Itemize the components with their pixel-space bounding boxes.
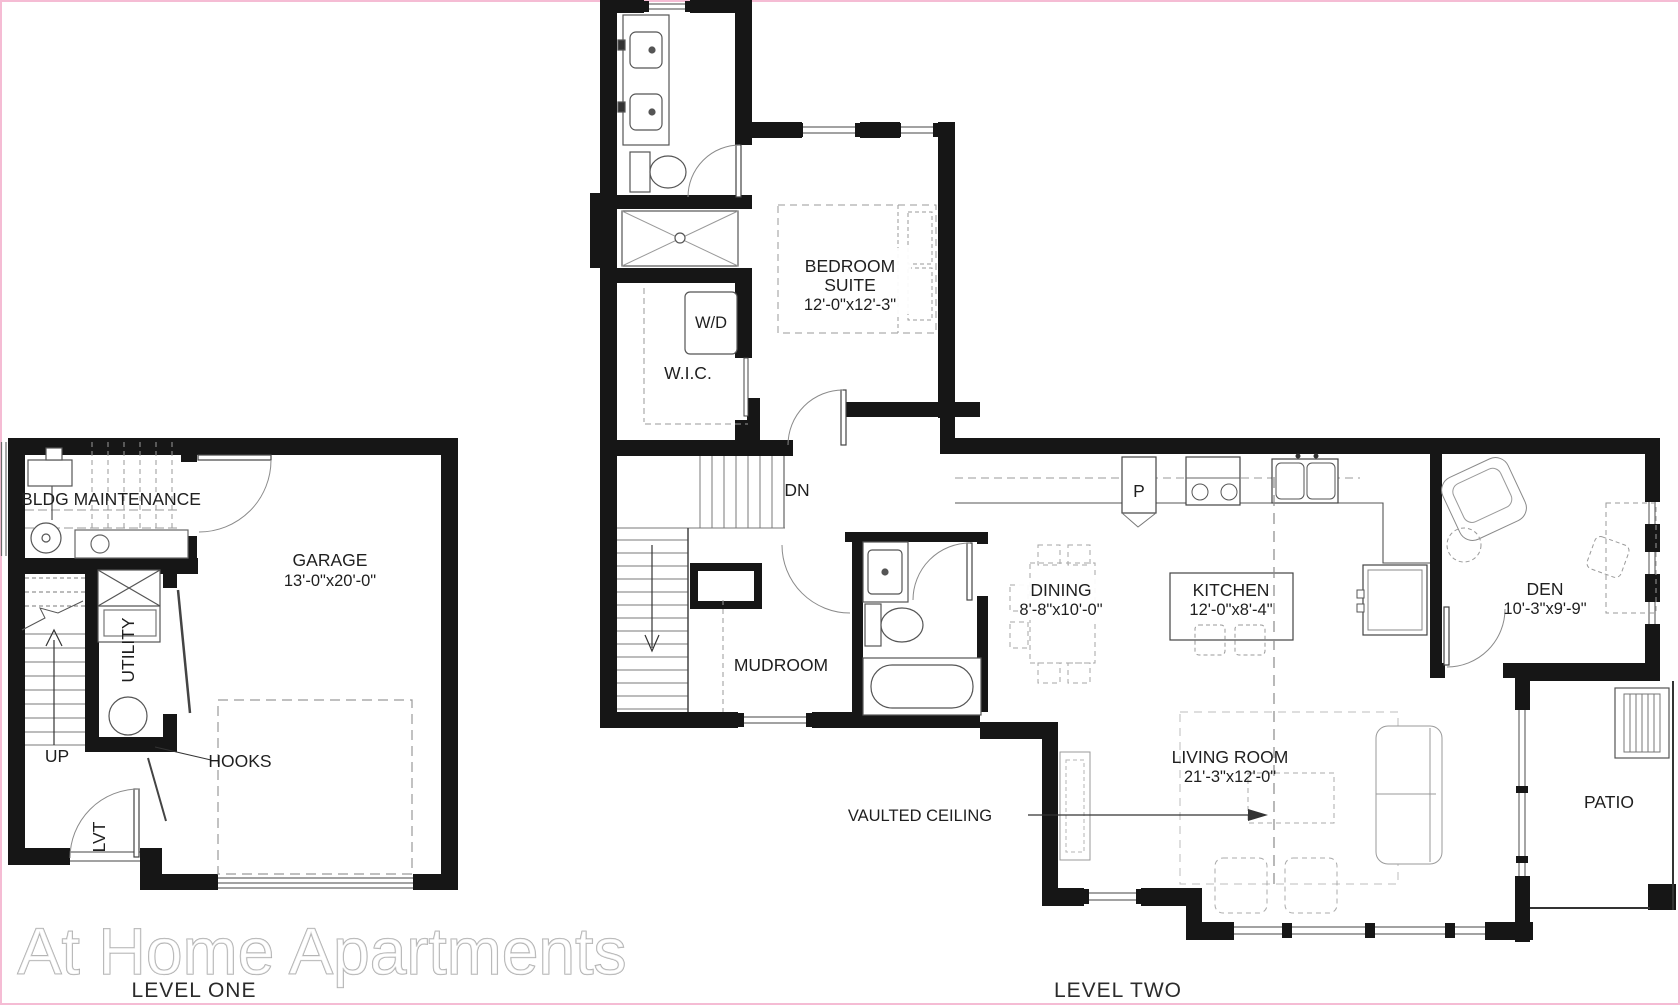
kitchen-label: KITCHEN <box>1193 580 1270 600</box>
mullion <box>685 1 690 12</box>
wall <box>845 532 988 542</box>
up-label: UP <box>45 746 69 766</box>
area-rug <box>1180 712 1398 884</box>
wall <box>603 268 752 283</box>
wall <box>163 562 177 588</box>
door-arc <box>1447 609 1505 667</box>
stair-break-line <box>22 601 83 630</box>
wall <box>1645 524 1660 552</box>
lounge-chair <box>1285 858 1337 913</box>
shower-drain <box>675 233 685 243</box>
level-one-stairs <box>22 578 85 745</box>
refrigerator <box>1363 565 1427 635</box>
washer-dryer-label: W/D <box>695 314 727 332</box>
floor-plan-page: BLDG MAINTENANCE GARAGE 13'-0"x20'-0" UT… <box>0 0 1680 1005</box>
vaulted-ceiling-arrow-head <box>1248 809 1268 821</box>
lvt-label: LVT <box>89 821 109 852</box>
utility-label: UTILITY <box>118 617 138 682</box>
dining-dimensions: 8'-8"x10'-0" <box>1019 601 1102 619</box>
wall <box>1042 888 1084 906</box>
patio-fixtures <box>1615 688 1669 758</box>
vaulted-ceiling-label: VAULTED CEILING <box>848 807 992 825</box>
pantry-label: P <box>1133 481 1145 501</box>
wall <box>600 0 644 13</box>
mullion <box>1084 889 1089 904</box>
toilet-bowl <box>650 156 686 188</box>
hooks-leader-line <box>155 747 211 760</box>
toilet-bowl <box>881 608 923 642</box>
bathtub-basin <box>871 665 973 708</box>
kitchen-sink-counter <box>1272 459 1338 503</box>
bldg-maintenance-label: BLDG MAINTENANCE <box>21 489 201 509</box>
sink <box>630 94 662 130</box>
mullion <box>1445 923 1455 938</box>
wall <box>1648 884 1676 910</box>
fridge-handle <box>1357 590 1364 598</box>
wall <box>85 562 99 752</box>
mudroom-label: MUDROOM <box>734 655 828 675</box>
level-one-title: LEVEL ONE <box>132 979 257 1002</box>
level-one-doors <box>70 455 271 858</box>
wall <box>413 874 458 890</box>
toilet-tank <box>865 604 881 646</box>
mullion <box>1136 889 1141 904</box>
wall <box>977 532 988 544</box>
watermark: At Home Apartments <box>18 914 627 988</box>
wall <box>1186 888 1202 940</box>
wall <box>590 193 604 268</box>
lounge-chair <box>1215 858 1267 913</box>
wall <box>860 122 900 138</box>
wall <box>160 874 218 890</box>
desk-chair <box>1585 535 1630 579</box>
bathroom-top-fixtures <box>618 15 738 354</box>
door-leaf <box>134 789 139 857</box>
sink-drain <box>649 109 655 115</box>
mullion <box>738 713 744 727</box>
wall <box>600 712 738 728</box>
dining-label: DINING <box>1030 580 1091 600</box>
faucet <box>618 102 625 112</box>
armchair-cushion <box>1450 465 1515 525</box>
dining-chair <box>1038 663 1060 683</box>
den-label: DEN <box>1527 579 1564 599</box>
wall <box>603 195 752 209</box>
wall <box>85 737 177 752</box>
kitchen-fixtures <box>955 454 1430 656</box>
door-arc <box>688 145 740 197</box>
door-leaf <box>967 543 972 600</box>
mullion <box>933 123 939 137</box>
wall <box>600 0 617 728</box>
armchair <box>1437 453 1531 545</box>
den-dimensions: 10'-3"x9'-9" <box>1503 600 1586 618</box>
door-leaf <box>178 590 190 713</box>
wall <box>1042 722 1058 898</box>
counter-edge <box>955 503 1430 563</box>
wall <box>441 438 458 890</box>
patio-label: PATIO <box>1584 792 1634 812</box>
sink-drain <box>882 569 888 575</box>
hooks-label: HOOKS <box>208 751 271 771</box>
level-two-title: LEVEL TWO <box>1054 979 1182 1002</box>
floor-plan-drawing: BLDG MAINTENANCE GARAGE 13'-0"x20'-0" UT… <box>0 0 1680 1005</box>
sink-drain <box>649 47 655 53</box>
wall <box>600 440 793 456</box>
living-room-label: LIVING ROOM <box>1172 747 1289 767</box>
parking-space-outline <box>218 700 412 874</box>
mullion <box>644 1 649 12</box>
garage-dimensions: 13'-0"x20'-0" <box>284 572 376 590</box>
wall <box>1645 574 1660 602</box>
console-table <box>1060 752 1090 860</box>
dining-chair <box>1038 545 1060 565</box>
mullion <box>1365 923 1375 938</box>
door-arc <box>913 543 970 600</box>
bedroom-suite-label-line2: SUITE <box>824 275 876 295</box>
kitchen-dimensions: 12'-0"x8'-4" <box>1189 601 1272 619</box>
pillow <box>908 268 932 320</box>
bathroom-hall-fixtures <box>863 542 981 715</box>
floor-drain-center <box>42 534 50 542</box>
wall <box>852 532 863 712</box>
wall <box>1485 922 1533 940</box>
coat-hooks <box>148 758 166 821</box>
living-room-dimensions: 21'-3"x12'-0" <box>1184 768 1276 786</box>
dining-chair <box>1068 545 1090 565</box>
mullion <box>806 713 812 727</box>
toilet-tank <box>630 152 650 192</box>
wall <box>1430 452 1442 668</box>
wall <box>1645 438 1660 502</box>
pantry-break-line <box>1122 513 1156 527</box>
walk-in-closet-label: W.I.C. <box>664 363 712 383</box>
mullion <box>797 123 803 137</box>
door-arc <box>782 545 850 613</box>
faucet-knob <box>1314 454 1319 459</box>
mop-sink-faucet <box>46 448 62 460</box>
wall <box>940 438 1660 454</box>
bench-sink <box>91 535 109 553</box>
wall <box>140 848 162 890</box>
level-two-plan: BEDROOM SUITE 12'-0"x12'-3" W/D W.I.C. D… <box>590 0 1676 942</box>
bedroom-suite-dimensions: 12'-0"x12'-3" <box>804 296 896 314</box>
dining-chair <box>1068 663 1090 683</box>
door-leaf <box>841 390 846 445</box>
slider-handle <box>1516 786 1528 793</box>
wall <box>938 122 955 418</box>
water-heater <box>109 697 147 735</box>
pocket-door <box>744 358 748 416</box>
wall <box>181 438 197 462</box>
dining-chair <box>1010 622 1028 648</box>
bedroom-suite-label-line1: BEDROOM <box>805 256 895 276</box>
sink <box>630 32 662 68</box>
wall <box>735 0 752 145</box>
wall <box>841 402 980 417</box>
wall <box>747 398 760 442</box>
level-one-plan: BLDG MAINTENANCE GARAGE 13'-0"x20'-0" UT… <box>2 438 459 890</box>
door-leaf <box>198 455 271 460</box>
mullion <box>1282 923 1292 938</box>
mullion <box>895 123 901 137</box>
armchair-group <box>1437 453 1531 545</box>
faucet <box>618 40 625 50</box>
wall <box>750 122 802 138</box>
door-arc <box>788 390 843 445</box>
side-table <box>1447 528 1481 562</box>
sofa <box>1376 726 1442 864</box>
stairs-down-label: DN <box>784 480 809 500</box>
door-leaf <box>1444 607 1449 665</box>
mullion <box>855 123 861 137</box>
pillow <box>908 212 932 264</box>
fridge-handle <box>1357 604 1364 612</box>
closet-interior <box>698 571 754 601</box>
wall <box>1202 922 1234 940</box>
wall <box>1515 663 1530 710</box>
garage-label: GARAGE <box>293 550 368 570</box>
faucet-knob <box>1296 454 1301 459</box>
wall <box>8 848 70 865</box>
door-arc <box>199 460 271 532</box>
slider-handle <box>1516 856 1528 863</box>
door-leaf <box>736 145 741 197</box>
wall <box>1528 663 1660 681</box>
wall <box>1430 663 1445 678</box>
mop-sink <box>28 460 72 486</box>
wall <box>8 438 458 455</box>
